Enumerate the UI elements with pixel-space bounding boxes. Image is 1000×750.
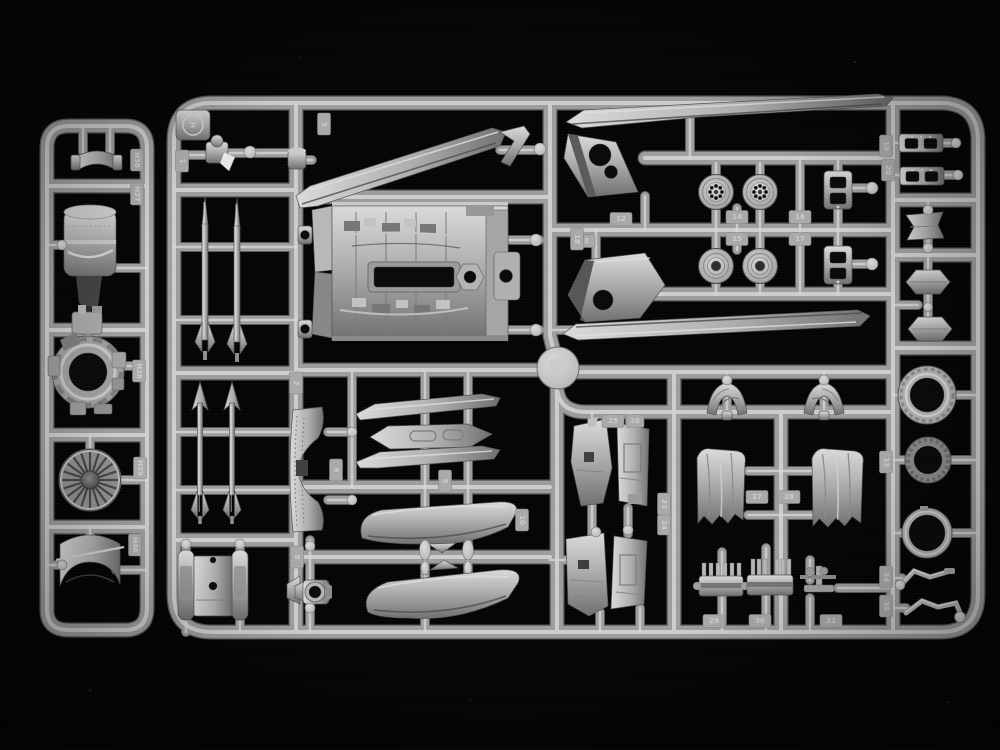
svg-text:1: 1 <box>178 159 186 164</box>
injection-gate-disc <box>537 347 579 389</box>
tag-3: 3 <box>318 113 331 135</box>
tag-26: 26 <box>626 415 644 428</box>
svg-text:8: 8 <box>293 555 301 560</box>
intake-trunk-half-1 <box>361 502 517 553</box>
svg-text:26: 26 <box>630 417 640 425</box>
nozzle-ring-fin-part <box>287 576 332 604</box>
tag-1: 1 <box>176 150 189 172</box>
svg-text:15: 15 <box>732 235 742 243</box>
main-wheel-inner-2 <box>743 249 778 284</box>
flameholder-ring-textured <box>905 437 951 483</box>
wing-fence-bracket-2 <box>568 253 665 322</box>
tag-18: 18 <box>571 228 584 250</box>
sprue-scene: H <box>0 0 1000 750</box>
svg-text:32: 32 <box>826 617 836 625</box>
svg-text:25: 25 <box>608 417 618 425</box>
tag-34: 34 <box>880 566 893 588</box>
wheel-arch-part <box>290 407 323 532</box>
tag-23: 23 <box>658 493 671 515</box>
svg-text:24: 24 <box>660 520 668 530</box>
svg-text:28: 28 <box>784 493 794 501</box>
tag-20: 20 <box>882 159 895 181</box>
tag-h39: H39 <box>134 457 147 479</box>
svg-text:9: 9 <box>332 468 340 473</box>
svg-text:20: 20 <box>884 165 892 175</box>
gear-door-part-1 <box>571 417 612 506</box>
svg-text:H40: H40 <box>131 537 139 553</box>
sprue-photo: H <box>0 0 1000 750</box>
sprue-letter-plate: H <box>176 110 210 140</box>
engine-bay-part <box>298 202 520 341</box>
svg-text:H37: H37 <box>133 186 141 202</box>
svg-text:18: 18 <box>573 234 581 244</box>
afterburner-ring-ribbed <box>898 366 956 424</box>
tag-33: 33 <box>880 451 893 473</box>
long-missile-1 <box>195 196 215 360</box>
svg-text:H36: H36 <box>133 152 141 168</box>
tag-17: 17 <box>789 233 811 246</box>
feeder-pod <box>420 540 431 560</box>
tag-8: 8 <box>291 546 304 568</box>
feeder-pod <box>421 561 429 575</box>
exhaust-petal-part-1 <box>697 449 745 524</box>
hex-panel-part-1 <box>906 270 950 294</box>
tag-16: 16 <box>789 211 811 224</box>
svg-text:16: 16 <box>795 213 805 221</box>
turbine-fan-part <box>59 449 121 511</box>
chevron-plate-part <box>906 212 944 240</box>
long-missile-2 <box>227 198 247 362</box>
intake-saddle-part <box>56 535 124 586</box>
tag-30: 30 <box>749 615 771 628</box>
svg-text:14: 14 <box>732 213 742 221</box>
tag-29: 29 <box>703 615 725 628</box>
tag-h38: H38 <box>133 360 146 382</box>
tag-28: 28 <box>778 491 800 504</box>
svg-text:H38: H38 <box>135 363 143 379</box>
tag-15: 15 <box>726 233 748 246</box>
svg-text:33: 33 <box>882 457 890 467</box>
gear-door-part-2 <box>617 423 649 506</box>
engine-mount-ring-part <box>48 305 126 415</box>
tag-h37: H37 <box>131 183 144 205</box>
arrow-plate-part <box>370 424 492 449</box>
svg-text:12: 12 <box>616 215 626 223</box>
main-wheel-inner-1 <box>699 249 734 284</box>
tag-27: 27 <box>746 491 768 504</box>
tag-25: 25 <box>602 415 624 428</box>
svg-text:10: 10 <box>518 515 526 525</box>
tag-h36: H36 <box>131 149 144 171</box>
svg-text:35: 35 <box>882 601 890 611</box>
feeder-pod <box>463 540 474 560</box>
wing-fence-bracket-1 <box>564 134 638 197</box>
gear-door-hinge-bracket-1 <box>824 171 852 209</box>
gear-door-part-3 <box>566 533 608 616</box>
svg-text:23: 23 <box>660 499 668 509</box>
access-step-bracket-1 <box>899 134 943 152</box>
hex-panel-part-2 <box>908 317 952 341</box>
tag-5: 5 <box>439 470 452 492</box>
gear-door-part-4 <box>611 536 647 609</box>
tag-10: 10 <box>516 509 529 531</box>
exhaust-petal-part-2 <box>812 449 863 527</box>
main-wheel-outer-1 <box>699 175 734 210</box>
avionics-drum-part <box>64 205 116 314</box>
main-wheel-outer-2 <box>743 175 778 210</box>
tag-19: 19 <box>880 135 893 157</box>
svg-text:2: 2 <box>292 381 300 386</box>
tag-h40: H40 <box>129 534 142 556</box>
tag-32: 32 <box>820 615 842 628</box>
svg-text:30: 30 <box>755 617 765 625</box>
access-step-bracket-2 <box>900 167 944 185</box>
svg-text:19: 19 <box>882 141 890 151</box>
tag-24: 24 <box>658 515 671 535</box>
gear-door-hinge-bracket-2 <box>824 246 852 284</box>
svg-text:27: 27 <box>752 493 762 501</box>
gear-bulkhead-part <box>178 550 248 620</box>
short-missile-1 <box>191 382 209 524</box>
tag-2: 2 <box>290 372 303 394</box>
svg-text:17: 17 <box>795 235 805 243</box>
svg-text:5: 5 <box>441 479 449 484</box>
svg-text:34: 34 <box>882 572 890 582</box>
short-missile-2 <box>223 382 241 524</box>
tag-35: 35 <box>880 595 893 617</box>
tag-9: 9 <box>330 459 343 481</box>
tag-14: 14 <box>726 211 748 224</box>
tag-12: 12 <box>610 213 632 226</box>
svg-text:3: 3 <box>320 122 328 127</box>
actuator-rod-part-1 <box>901 568 955 585</box>
sprue-letter: H <box>189 122 197 128</box>
intake-trunk-half-2 <box>366 560 519 619</box>
svg-text:H39: H39 <box>136 460 144 476</box>
svg-text:29: 29 <box>709 617 719 625</box>
nozzle-ring-thin <box>902 506 952 558</box>
actuator-rod-part-2 <box>906 600 961 615</box>
